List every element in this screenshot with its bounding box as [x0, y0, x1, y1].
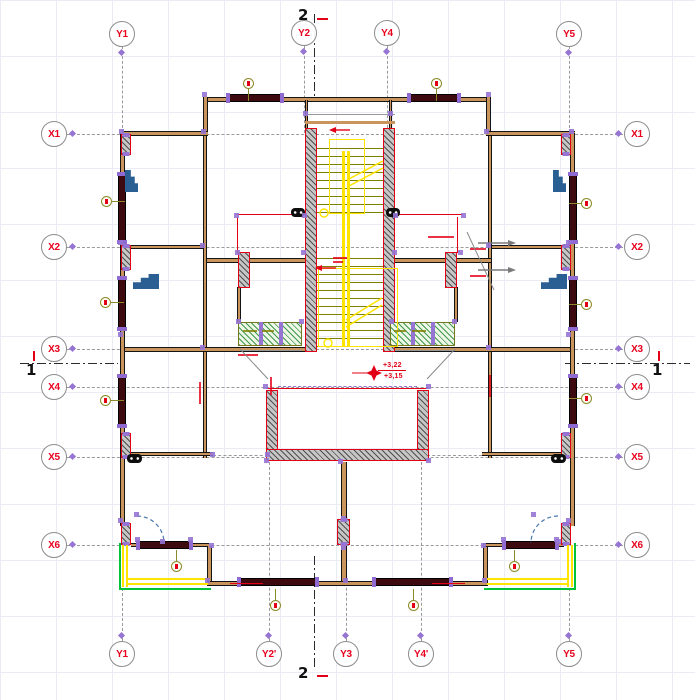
- section-2-tick-top: [317, 18, 328, 20]
- window-tag: [581, 393, 592, 404]
- plan-canvas[interactable]: +3,22 +3,15 2 2 1 1 Y1 Y2 Y4 Y5 Y1 Y2' Y…: [0, 0, 695, 700]
- section-2-line-bottom: [314, 556, 315, 668]
- grip: [341, 545, 346, 550]
- door-balcony-right: [503, 541, 558, 549]
- window-bottom-left: [238, 578, 318, 586]
- axis-bubble-x3-right: X3: [624, 336, 650, 362]
- bottom-red-line-left: [230, 583, 263, 584]
- grip: [202, 92, 207, 97]
- axis-bubble-x2-right: X2: [624, 234, 650, 260]
- grip: [119, 129, 124, 134]
- balcony-edge-left-h: [119, 588, 211, 590]
- entry-arrow-head: [329, 127, 336, 133]
- micro-label: [199, 382, 201, 404]
- grip: [426, 458, 431, 463]
- axis-bubble-x1-left: X1: [41, 121, 67, 147]
- column-y1x2: [121, 245, 131, 270]
- balcony-edge-right-h: [484, 588, 576, 590]
- axis-bubble-y2p-bottom: Y2': [256, 641, 282, 667]
- micro-label: [270, 377, 272, 395]
- grip: [303, 111, 308, 116]
- axis-bubble-y1-top: Y1: [109, 21, 135, 47]
- micro-label: [238, 354, 258, 356]
- column-y5x2: [561, 245, 571, 270]
- balcony-rail-right-h: [487, 578, 569, 585]
- stair-landing-line: [305, 114, 395, 115]
- level-value-upper: +3,22: [383, 362, 402, 369]
- column-y1x6: [121, 523, 131, 545]
- stair-rail-outline-lower: [318, 268, 398, 347]
- window-top-left: [227, 94, 283, 102]
- grip: [486, 345, 491, 350]
- stair-red-jamb-right: [457, 217, 458, 253]
- section-2-label-bottom: 2: [298, 666, 308, 681]
- grip: [235, 250, 240, 255]
- jamb-detail-icon-right-mid: [541, 274, 567, 289]
- axis-dash-line-y5-top: [569, 46, 570, 133]
- section-1-label-right: 1: [652, 363, 662, 378]
- micro-label: [262, 330, 274, 332]
- planter-left: [238, 322, 302, 346]
- column-stem: [337, 519, 350, 545]
- grip: [118, 240, 123, 245]
- wall-landing-left: [207, 258, 307, 263]
- grip: [188, 537, 193, 542]
- stair-hall-wall-left: [238, 252, 250, 288]
- grip: [531, 512, 536, 517]
- wall-planter-left: [237, 287, 241, 322]
- grip: [343, 578, 348, 583]
- stair-red-edge-right: [390, 214, 463, 215]
- planter-step-left: [240, 350, 302, 351]
- micro-label: [394, 330, 406, 332]
- wall-gap-dash-left: [213, 455, 268, 456]
- grip: [461, 213, 466, 218]
- bottom-red-line-right: [432, 583, 465, 584]
- wall-room-right-2: [486, 347, 570, 352]
- axis-bubble-y2-top: Y2: [291, 20, 317, 46]
- shaft-wall-bottom: [266, 449, 429, 461]
- stair-red-jamb-left: [237, 217, 238, 253]
- grip: [389, 319, 394, 324]
- grip: [118, 332, 123, 337]
- shaft-top-purple-dash: [278, 386, 417, 387]
- wall-gap-dash-right: [427, 455, 482, 456]
- grip: [200, 243, 205, 248]
- grip: [134, 512, 139, 517]
- balcony-edge-right-v: [574, 543, 576, 590]
- micro-label: [412, 330, 426, 332]
- grip: [554, 537, 559, 542]
- level-marker-star: [366, 365, 382, 381]
- grip: [301, 250, 306, 255]
- window-tag: [100, 297, 111, 308]
- micro-label: [333, 261, 343, 263]
- window-tag: [100, 395, 111, 406]
- jamb-detail-icon-left-top: [125, 170, 138, 192]
- grip: [458, 250, 463, 255]
- wall-room-left-1: [125, 245, 203, 249]
- axis-dash-line-y2p-bottom: [269, 462, 270, 641]
- shaft-top-red-line: [266, 388, 429, 389]
- grip: [338, 459, 343, 464]
- wall-x1-left: [122, 131, 208, 136]
- grip: [263, 384, 268, 389]
- wall-interior-left: [203, 136, 207, 458]
- door-arrow-head: [508, 267, 516, 273]
- grip: [393, 213, 398, 218]
- axis-bubble-y5-top: Y5: [556, 21, 582, 47]
- window-right-1: [569, 173, 577, 243]
- micro-label: [470, 275, 486, 277]
- leader-line-right: [427, 349, 455, 379]
- grip: [482, 578, 487, 583]
- annotations-overlay: [0, 0, 695, 700]
- column-node-x5-left: [127, 454, 142, 463]
- section-1-line-right: [565, 363, 690, 364]
- column-y5x1: [561, 134, 571, 155]
- grip: [135, 537, 140, 542]
- grip: [501, 537, 506, 542]
- grip: [201, 129, 206, 134]
- wall-room-right-1: [492, 245, 570, 249]
- grip: [200, 345, 205, 350]
- grip: [160, 539, 165, 544]
- window-tag: [408, 600, 419, 611]
- stair-hall-wall-right: [445, 252, 457, 288]
- axis-bubble-x1-right: X1: [624, 121, 650, 147]
- window-tag: [581, 198, 592, 209]
- planter-step-right: [393, 350, 455, 351]
- axis-dash-line-y4p-bottom: [421, 462, 422, 641]
- grip: [118, 518, 123, 523]
- grip: [341, 516, 346, 521]
- window-tag: [431, 78, 442, 89]
- jamb-detail-icon-left-mid: [133, 274, 159, 289]
- window-left-3: [118, 375, 126, 427]
- grip: [481, 543, 486, 548]
- window-top-right: [408, 94, 460, 102]
- grip: [452, 319, 457, 324]
- balcony-edge-left-v: [119, 543, 121, 590]
- section-1-label-left: 1: [26, 363, 36, 378]
- column-y5x6: [561, 523, 571, 545]
- micro-label: [243, 330, 257, 332]
- micro-label: [428, 236, 454, 238]
- grip: [264, 458, 269, 463]
- grip: [392, 250, 397, 255]
- stair-core-wall-left: [305, 128, 317, 352]
- grip: [302, 213, 307, 218]
- section-2-tick-bottom: [317, 675, 328, 677]
- grip: [209, 543, 214, 548]
- window-tag: [509, 561, 520, 572]
- axis-bubble-x3-left: X3: [41, 336, 67, 362]
- axis-bubble-x6-right: X6: [624, 532, 650, 558]
- window-left-1: [118, 173, 126, 243]
- axis-bubble-y4p-bottom: Y4': [408, 641, 434, 667]
- grip: [236, 319, 241, 324]
- grip: [299, 319, 304, 324]
- level-underline: [378, 370, 406, 371]
- axis-bubble-x4-left: X4: [41, 374, 67, 400]
- planter-right: [390, 322, 455, 346]
- window-left-2: [118, 277, 126, 330]
- grip: [484, 129, 489, 134]
- micro-label: [333, 257, 347, 259]
- window-tag: [101, 196, 112, 207]
- axis-bubble-x6-left: X6: [41, 532, 67, 558]
- grip: [426, 384, 431, 389]
- stair-center-rail: [342, 151, 350, 347]
- grip: [566, 240, 571, 245]
- axis-bubble-y3-bottom: Y3: [333, 641, 359, 667]
- grip: [566, 518, 571, 523]
- axis-bubble-x5-right: X5: [624, 444, 650, 470]
- grip: [486, 92, 491, 97]
- axis-bubble-y1-bottom: Y1: [109, 641, 135, 667]
- window-tag: [243, 78, 254, 89]
- level-value-lower: +3,15: [384, 373, 403, 380]
- window-tag: [171, 561, 182, 572]
- window-bottom-right: [373, 578, 452, 586]
- axis-dash-line-y1-top: [122, 46, 123, 133]
- wall-landing-right: [388, 258, 491, 263]
- wall-room-left-2: [125, 347, 207, 352]
- grip: [234, 213, 239, 218]
- jamb-detail-icon-right-top: [553, 170, 566, 192]
- window-right-3: [569, 375, 577, 427]
- section-1-tick-right: [658, 351, 660, 361]
- axis-dash-line-y4-top: [387, 46, 388, 133]
- grip: [210, 452, 215, 457]
- stair-landing-sill: [305, 121, 395, 124]
- window-tag: [270, 600, 281, 611]
- grip: [569, 129, 574, 134]
- axis-bubble-x5-left: X5: [41, 444, 67, 470]
- window-tag: [581, 299, 592, 310]
- axis-bubble-x4-right: X4: [624, 374, 650, 400]
- balcony-rail-left-h: [126, 578, 208, 585]
- wall-interior-right: [488, 136, 492, 458]
- wall-planter-right: [454, 287, 458, 322]
- grip: [265, 452, 270, 457]
- grip: [566, 332, 571, 337]
- grip: [388, 111, 393, 116]
- axis-bubble-x2-left: X2: [41, 234, 67, 260]
- micro-label: [489, 375, 491, 397]
- section-1-tick-left: [33, 351, 35, 361]
- column-y1x1: [121, 134, 131, 155]
- column-node-x5-right: [551, 454, 566, 463]
- grip: [486, 243, 491, 248]
- grip: [205, 578, 210, 583]
- micro-label: [470, 248, 486, 250]
- axis-bubble-y4-top: Y4: [374, 20, 400, 46]
- axis-bubble-y5-bottom: Y5: [556, 641, 582, 667]
